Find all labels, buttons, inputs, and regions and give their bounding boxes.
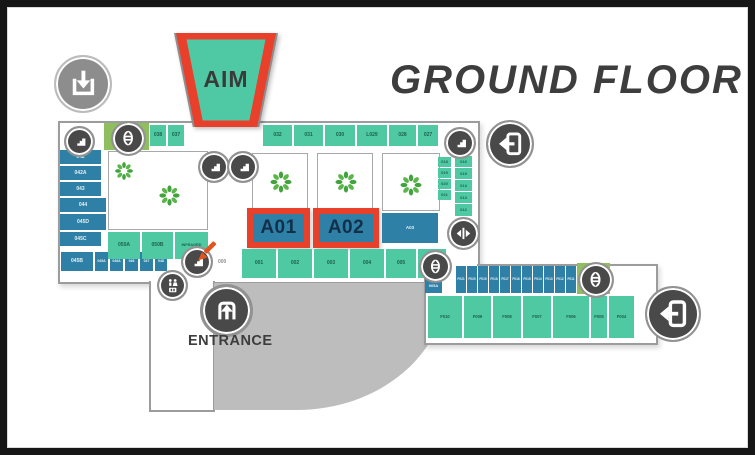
room-f016[interactable]: F016 — [511, 266, 521, 293]
room-f020[interactable]: F020 — [467, 266, 477, 293]
room-f015[interactable]: F015 — [522, 266, 532, 293]
room-f004[interactable]: F004 — [609, 296, 634, 338]
room-045b[interactable]: 045B — [61, 252, 93, 271]
room-003[interactable]: 003 — [314, 249, 348, 278]
door-exit-icon — [486, 120, 534, 168]
elevator-icon — [578, 262, 614, 298]
page-title: GROUND FLOOR — [390, 58, 743, 103]
room-044[interactable]: 044 — [60, 198, 106, 212]
room-f012[interactable]: F012 — [555, 266, 565, 293]
room-f014[interactable]: F014 — [533, 266, 543, 293]
room-004[interactable]: 004 — [350, 249, 384, 278]
aim-label: AIM — [171, 66, 281, 93]
plant-icon — [268, 169, 294, 195]
room-019[interactable]: 019 — [438, 168, 451, 178]
door-exit-icon — [645, 286, 701, 342]
plant-icon — [113, 160, 135, 182]
room-030[interactable]: 030 — [325, 125, 355, 146]
stairs-icon — [227, 151, 259, 183]
restroom-icon — [157, 270, 188, 301]
room-028[interactable]: 028 — [389, 125, 416, 146]
room-045a[interactable]: 045A — [95, 252, 108, 271]
room-f010[interactable]: F010 — [428, 296, 462, 338]
room-f013[interactable]: F013 — [544, 266, 554, 293]
room-045d[interactable]: 045D — [60, 214, 106, 230]
room-a03[interactable]: A03 — [382, 213, 438, 243]
room-l029[interactable]: L029 — [357, 125, 387, 146]
room-020[interactable]: 020 — [438, 179, 451, 189]
entrance-icon — [200, 284, 253, 337]
room-018[interactable]: 018 — [438, 157, 451, 167]
unit-a01-label: A01 — [253, 214, 304, 242]
exit-down-icon — [54, 55, 112, 113]
stairs-icon — [64, 126, 95, 157]
room-f011[interactable]: F011 — [566, 266, 576, 293]
plant-icon — [333, 169, 359, 195]
room-005[interactable]: 005 — [386, 249, 416, 278]
room-f008[interactable]: F008 — [493, 296, 521, 338]
room-012[interactable]: 012 — [455, 204, 472, 216]
aim-entrance[interactable]: AIM — [171, 33, 281, 127]
room-037[interactable]: 037 — [168, 125, 184, 146]
highlight-unit-a02[interactable]: A02 — [313, 208, 379, 248]
room-f021[interactable]: F021 — [456, 266, 466, 293]
room-013[interactable]: 013 — [455, 192, 472, 203]
room-f007[interactable]: F007 — [523, 296, 551, 338]
room-f018[interactable]: F018 — [489, 266, 499, 293]
room-027[interactable]: 027 — [418, 125, 438, 146]
room-f006[interactable]: F006 — [553, 296, 589, 338]
room-021[interactable]: 021 — [438, 190, 451, 200]
elevator-icon — [111, 121, 146, 156]
room-f009[interactable]: F009 — [464, 296, 491, 338]
you-are-here-arrow-icon — [195, 240, 219, 264]
room-032[interactable]: 032 — [263, 125, 292, 146]
highlight-unit-a01[interactable]: A01 — [247, 208, 310, 248]
room-031[interactable]: 031 — [294, 125, 323, 146]
stairs-icon — [444, 127, 476, 159]
room-001[interactable]: 001 — [242, 249, 276, 278]
room-038[interactable]: 038 — [150, 125, 166, 146]
room-f017[interactable]: F017 — [500, 266, 510, 293]
elevator-icon — [419, 250, 452, 283]
room-043[interactable]: 043 — [60, 182, 101, 196]
room-f005[interactable]: F005 — [591, 296, 607, 338]
ground-floor-plan: GROUND FLOOR AIM 038 037 032 031 030 L02… — [0, 0, 755, 455]
unit-a02-label: A02 — [319, 214, 373, 242]
room-045c[interactable]: 045C — [60, 232, 101, 246]
lift-doors-icon — [447, 217, 480, 250]
room-015[interactable]: 015 — [455, 168, 472, 179]
entrance-label: ENTRANCE — [188, 333, 273, 349]
room-000: 000 — [218, 259, 226, 265]
room-014[interactable]: 014 — [455, 180, 472, 191]
room-050b[interactable]: 050B — [142, 232, 173, 259]
room-042a[interactable]: 042A — [60, 166, 101, 180]
room-050a[interactable]: 050A — [108, 232, 140, 259]
room-002[interactable]: 002 — [278, 249, 312, 278]
plant-icon — [398, 172, 424, 198]
room-f019[interactable]: F019 — [478, 266, 488, 293]
stairs-icon — [198, 151, 230, 183]
plant-icon — [157, 183, 182, 208]
